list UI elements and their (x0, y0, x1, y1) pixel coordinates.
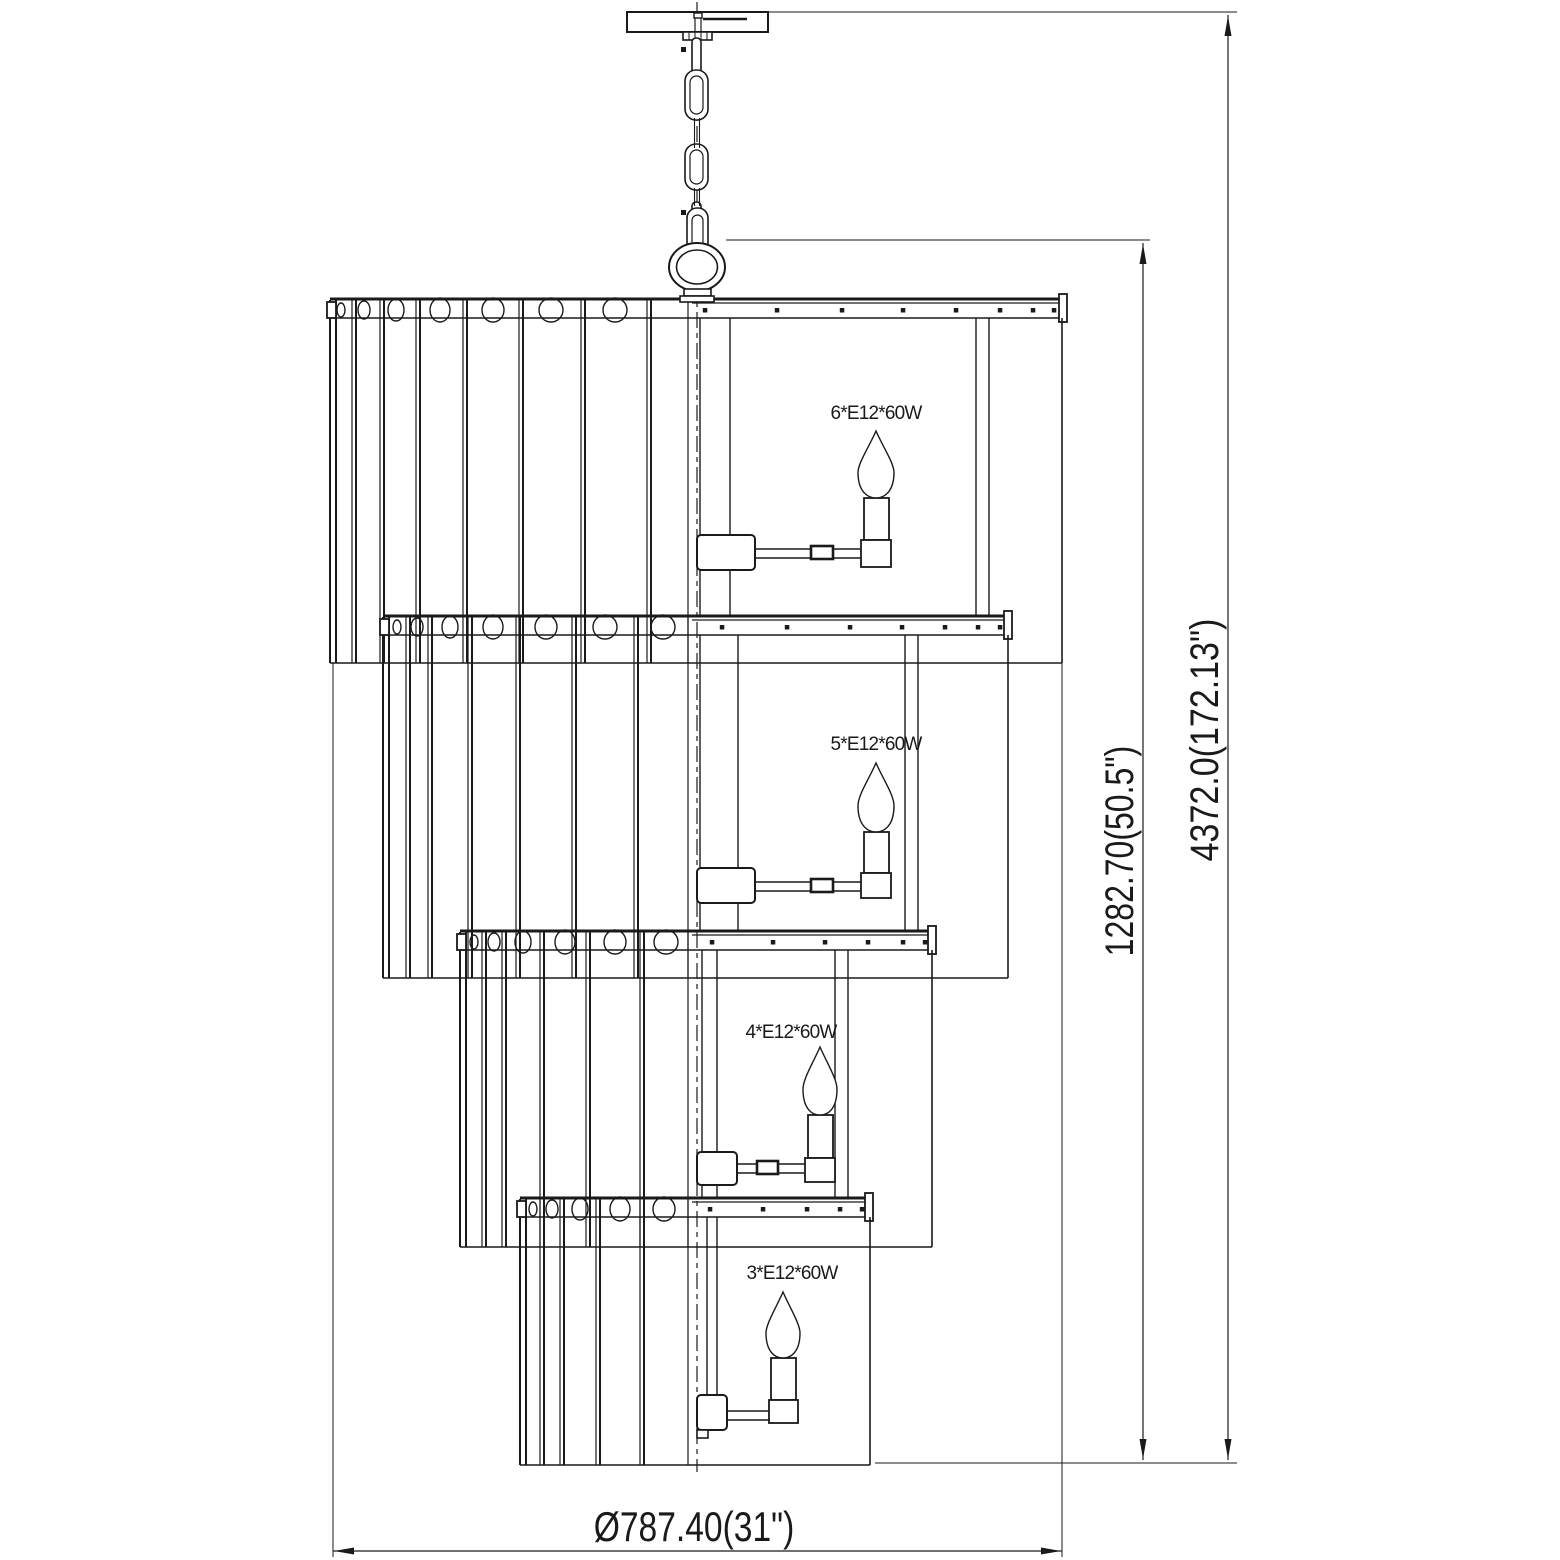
tier1-lamp-spec-label: 6*E12*60W (830, 404, 921, 423)
body-height-dimension-label: 1282.70(50.5") (1100, 746, 1140, 957)
tier4-lamp-spec-label: 3*E12*60W (746, 1264, 837, 1283)
tier-4-assembly (517, 1193, 873, 1465)
chandelier-line-drawing (0, 0, 1560, 1560)
ceiling-canopy (627, 12, 768, 40)
hanging-chain (681, 38, 708, 262)
chandelier-dimension-drawing: 6*E12*60W 5*E12*60W 4*E12*60W 3*E12*60W … (0, 0, 1560, 1560)
overall-diameter-dimension-label: Ø787.40(31") (594, 1506, 795, 1548)
tier-2-assembly (380, 611, 1012, 978)
tier2-lamp-spec-label: 5*E12*60W (830, 735, 921, 754)
tier-3-candle (697, 1047, 837, 1185)
tier-1-candle (697, 431, 894, 570)
tier-2-candle (697, 763, 894, 903)
overall-height-dimension-label: 4372.0(172.13") (1185, 619, 1225, 862)
suspension-ring (669, 243, 725, 302)
tier3-lamp-spec-label: 4*E12*60W (745, 1023, 836, 1042)
tier-4-candle (697, 1292, 800, 1438)
